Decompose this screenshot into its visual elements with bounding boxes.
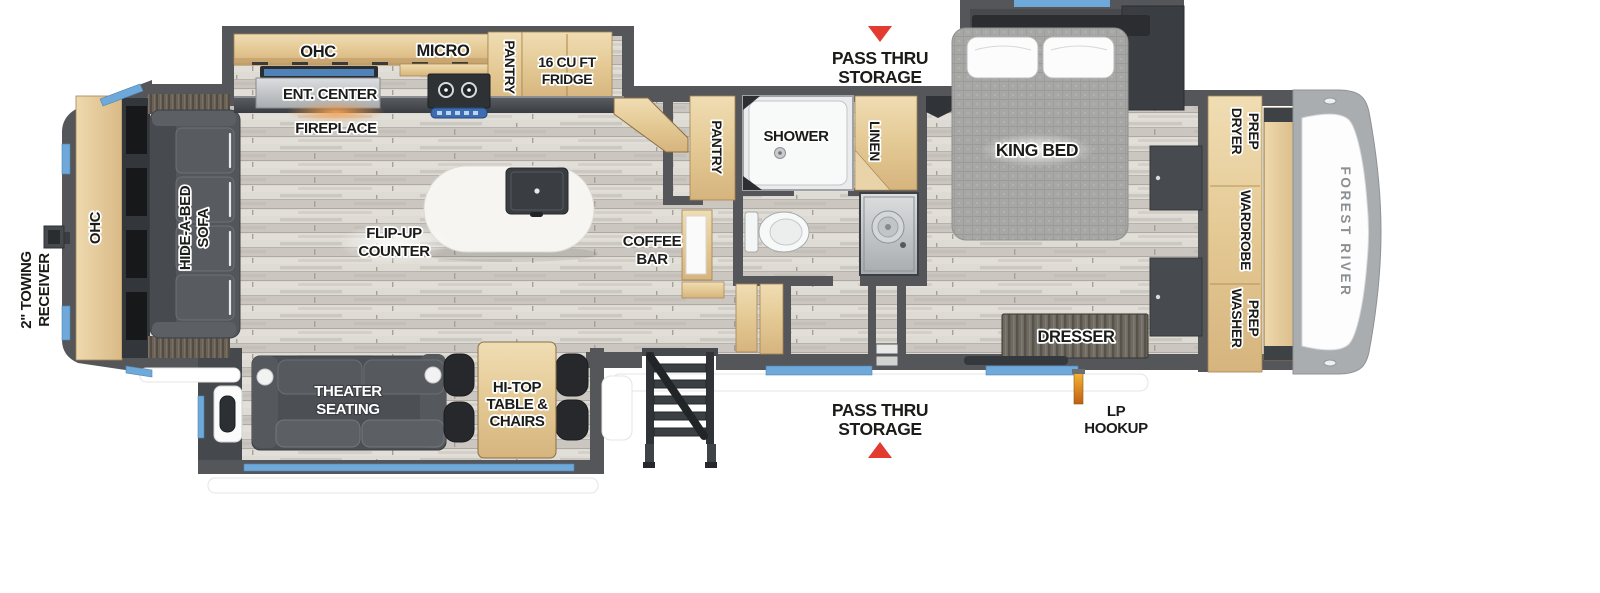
label-dryer: DRYER [1229,108,1245,155]
label-kitchen-pantry: PANTRY [502,40,518,95]
cupholder-right [425,367,441,383]
label-theater: THEATERSEATING [314,383,382,418]
label-wardrobe: WARDROBE [1238,190,1254,270]
bath-step-2 [760,284,783,354]
label-fireplace: FIREPLACE [295,120,377,137]
entry-stairs [643,352,717,468]
floorplan-page: PASS THRUSTORAGE OHC MICRO PANTRY 16 CU … [0,0,1600,593]
sofa-trim-bottom [148,336,230,358]
label-linen: LINEN [867,121,883,161]
soundbar [964,356,1068,365]
bath-step-1 [736,284,757,352]
label-king-bed: KING BED [996,140,1078,160]
island-faucet [530,212,543,217]
pass-thru-top-arrow [868,26,892,42]
label-hall-pantry: PANTRY [709,120,725,175]
label-micro: MICRO [417,42,471,60]
label-kitchen-ohc: OHC [300,43,336,61]
label-sofa: HIDE-A-BED [177,185,194,270]
cupholder-left [257,369,273,385]
label-pass-thru-top: PASS THRUSTORAGE [832,48,928,87]
label-rear-ohc: OHC [87,211,104,244]
bed-window [1014,0,1110,7]
front-cap [1293,90,1381,374]
label-washer: WASHER [1229,288,1245,347]
floorplan-diagram: PASS THRUSTORAGE OHC MICRO PANTRY 16 CU … [0,0,1600,593]
toilet [745,212,809,252]
vanity-sink [860,193,918,275]
label-dresser: DRESSER [1038,328,1115,346]
label-dryer-prep: PREP [1246,113,1262,150]
stove [428,74,490,118]
label-sofa2: SOFA [195,208,212,248]
label-island: FLIP-UPCOUNTER [358,225,430,260]
pass-thru-bottom-arrow [868,442,892,458]
label-fridge: 16 CU FTFRIDGE [538,54,596,87]
label-towing: 2" TOWING [18,251,35,328]
label-towing2: RECEIVER [36,253,53,327]
label-lp-hookup: LPHOOKUP [1084,403,1148,437]
label-pass-thru-bottom: PASS THRUSTORAGE [832,400,928,439]
label-hitop: HI-TOPTABLE &CHAIRS [486,379,548,430]
label-ent-center: ENT. CENTER [283,86,378,103]
label-shower: SHOWER [763,128,829,145]
label-brand: FOREST RIVER [1338,167,1353,298]
lp-hookup-pipe [1074,372,1083,404]
label-washer-prep: PREP [1246,300,1262,337]
